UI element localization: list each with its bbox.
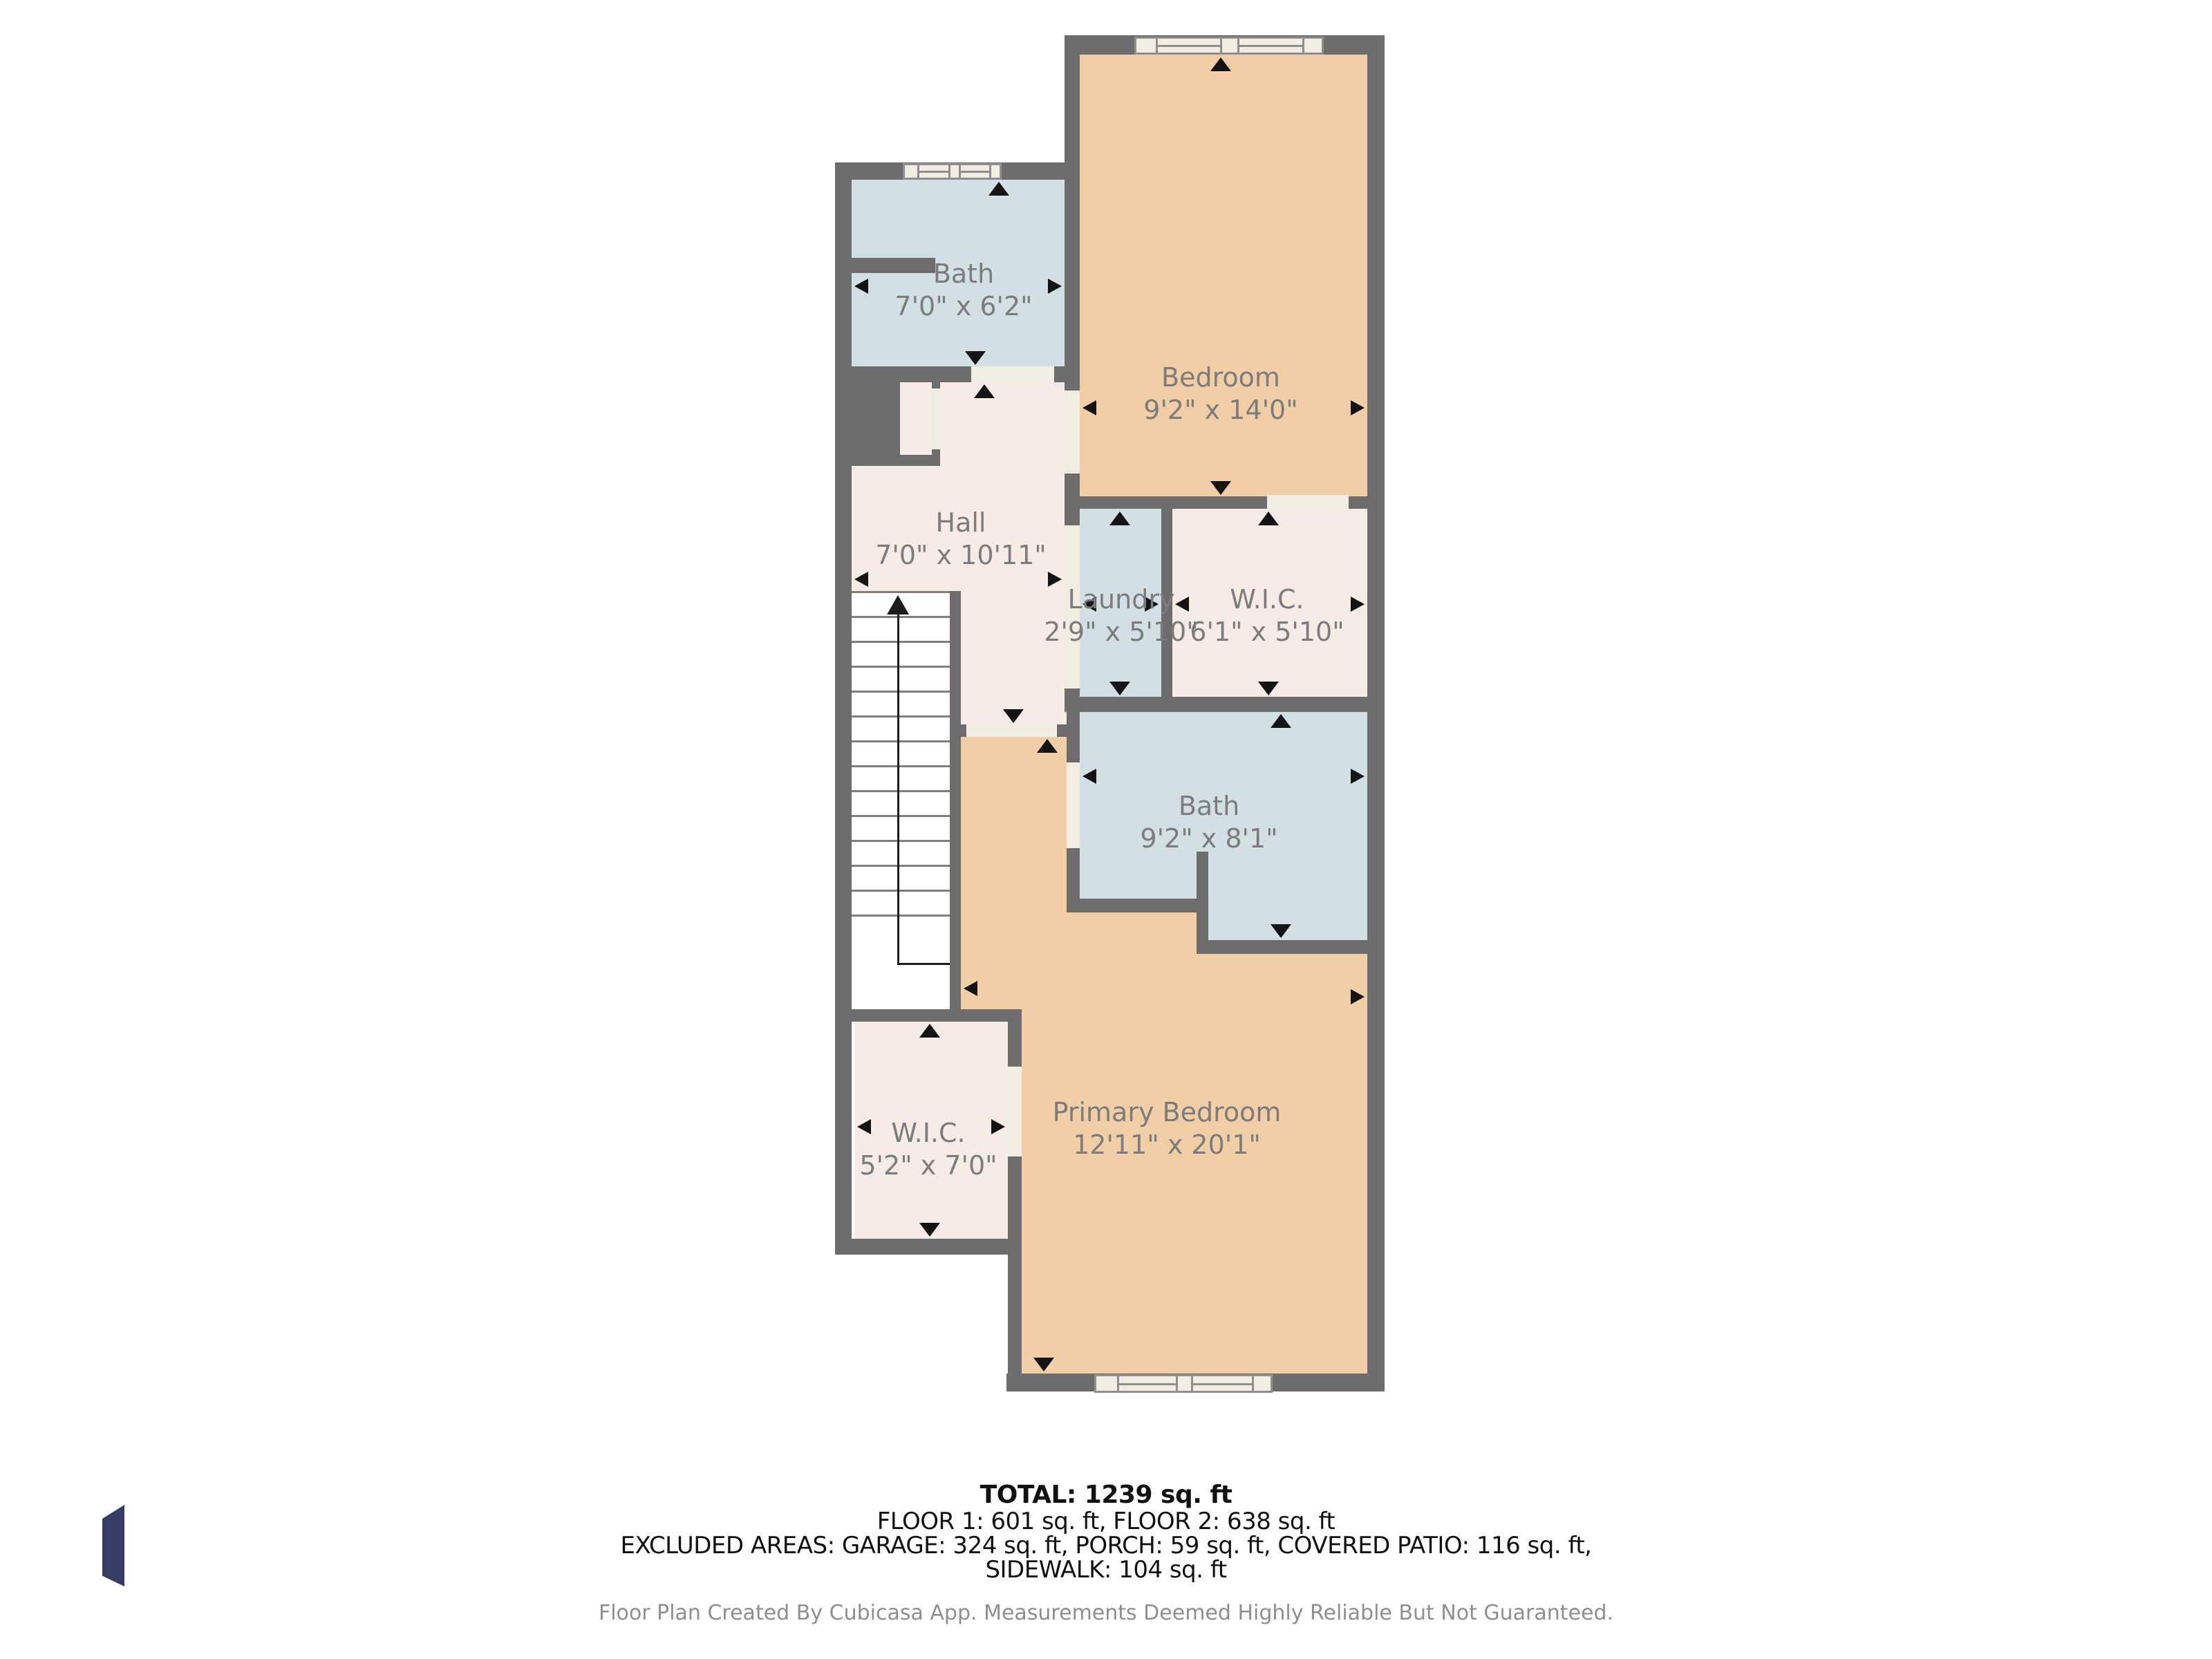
dimension-arrow-right — [1048, 279, 1062, 294]
wall — [1367, 35, 1385, 1391]
stair-tread — [852, 765, 950, 767]
stair-tread — [852, 815, 950, 817]
stair-tread — [852, 915, 950, 917]
door-opening — [1067, 762, 1080, 848]
room-label-wic-upper: W.I.C. 6'1" x 5'10" — [1190, 583, 1344, 648]
room-bedroom — [1080, 55, 1367, 496]
window-frame-line — [1117, 1383, 1176, 1385]
window-frame-line — [1193, 1383, 1252, 1385]
dimension-arrow-up — [1037, 739, 1058, 753]
room-name: Bath — [894, 258, 1032, 290]
room-dimensions: 9'2" x 8'1" — [1140, 823, 1277, 855]
window-frame-line — [1220, 39, 1222, 53]
wall — [1008, 1009, 1022, 1374]
cubicasa-logo-icon — [102, 1505, 124, 1586]
dimension-arrow-left — [854, 279, 868, 294]
room-dimensions: 2'9" x 5'10" — [1044, 616, 1198, 648]
room-name: Laundry — [1044, 583, 1198, 616]
room-label-hall: Hall 7'0" x 10'11" — [875, 507, 1047, 572]
room-name: Bath — [1140, 790, 1277, 823]
dimension-arrow-down — [1109, 682, 1130, 695]
wall — [900, 455, 940, 466]
room-primary-corridor — [961, 737, 1067, 1009]
dimension-arrow-down — [1210, 481, 1231, 495]
wall — [835, 1009, 1008, 1022]
dimension-arrow-left — [964, 981, 977, 996]
room-dimensions: 7'0" x 6'2" — [894, 290, 1032, 323]
disclaimer-text: Floor Plan Created By Cubicasa App. Meas… — [0, 1601, 2212, 1625]
room-dimensions: 5'2" x 7'0" — [859, 1150, 997, 1182]
dimension-arrow-up — [974, 384, 995, 398]
dimension-arrow-down — [1258, 682, 1279, 695]
window-frame-line — [948, 165, 950, 178]
dimension-arrow-down — [1033, 1358, 1054, 1371]
window-frame-line — [1252, 1376, 1254, 1391]
room-name: Hall — [875, 507, 1047, 539]
dimension-arrow-up — [919, 1024, 940, 1038]
window-frame-line — [1176, 1376, 1178, 1391]
wall — [852, 368, 900, 466]
room-label-primary-bedroom: Primary Bedroom 12'11" x 20'1" — [1053, 1096, 1282, 1161]
wall — [835, 162, 852, 1255]
room-label-bedroom: Bedroom 9'2" x 14'0" — [1143, 362, 1297, 427]
stair-tread — [852, 740, 950, 742]
wall — [1197, 852, 1208, 953]
excluded-areas-text: EXCLUDED AREAS: GARAGE: 324 sq. ft, PORC… — [0, 1532, 2212, 1559]
room-primary-main — [1022, 1009, 1367, 1374]
door-opening — [966, 724, 1057, 737]
stair-tread — [852, 840, 950, 842]
dimension-arrow-down — [1003, 709, 1024, 723]
dimension-arrow-down — [1271, 924, 1291, 938]
total-area-text: TOTAL: 1239 sq. ft — [0, 1481, 2212, 1509]
wall — [1067, 899, 1197, 912]
room-hall-alcove — [900, 382, 932, 455]
stair-tread — [852, 591, 950, 593]
dimension-arrow-right — [1351, 989, 1365, 1004]
door-opening — [1008, 1067, 1022, 1156]
dimension-arrow-up — [1258, 512, 1279, 525]
dimension-arrow-down — [965, 351, 986, 365]
window-frame-line — [1302, 39, 1304, 53]
dimension-arrow-up — [1271, 714, 1291, 728]
door-opening — [1065, 391, 1080, 474]
dimension-arrow-left — [854, 572, 868, 587]
stair-tread — [852, 865, 950, 867]
wall — [1197, 940, 1367, 954]
room-primary-mid-left — [1067, 912, 1197, 1009]
wall — [835, 1239, 1022, 1255]
window-frame-line — [989, 165, 991, 178]
excluded-areas-text-2: SIDEWALK: 104 sq. ft — [0, 1556, 2212, 1584]
wall — [950, 591, 961, 1009]
stair-tread — [852, 790, 950, 792]
window-frame-line — [917, 171, 948, 173]
stair-tread — [852, 715, 950, 718]
room-name: W.I.C. — [1190, 583, 1344, 616]
dimension-arrow-right — [1351, 400, 1365, 415]
floor-areas-text: FLOOR 1: 601 sq. ft, FLOOR 2: 638 sq. ft — [0, 1508, 2212, 1535]
dimension-arrow-up — [1109, 512, 1130, 525]
room-label-bath-lower: Bath 9'2" x 8'1" — [1140, 790, 1277, 855]
room-dimensions: 12'11" x 20'1" — [1053, 1129, 1282, 1161]
dimension-arrow-up — [1210, 57, 1231, 71]
window-frame-line — [961, 171, 989, 173]
dimension-arrow-right — [1351, 597, 1365, 612]
window — [1134, 37, 1324, 55]
room-primary-mid-right — [1197, 954, 1367, 1009]
dimension-arrow-down — [919, 1223, 940, 1237]
stair-tread — [852, 691, 950, 693]
room-name: W.I.C. — [859, 1117, 997, 1150]
room-dimensions: 9'2" x 14'0" — [1143, 394, 1297, 427]
room-hall-upper — [940, 382, 1065, 466]
door-opening — [1267, 495, 1349, 509]
dimension-arrow-left — [1082, 400, 1096, 415]
stair-direction-arrow-icon — [887, 595, 909, 615]
stair-run-line — [897, 612, 899, 964]
dimension-arrow-right — [1351, 769, 1365, 784]
floor-plan-canvas: Bath 7'0" x 6'2" Bedroom 9'2" x 14'0" Ha… — [0, 0, 2212, 1659]
room-label-laundry: Laundry 2'9" x 5'10" — [1044, 583, 1198, 648]
door-opening — [932, 388, 940, 449]
stair-tread — [852, 890, 950, 892]
dimension-arrow-up — [988, 182, 1009, 196]
stair-run-line — [897, 963, 950, 965]
room-label-wic-lower: W.I.C. 5'2" x 7'0" — [859, 1117, 997, 1182]
room-dimensions: 6'1" x 5'10" — [1190, 616, 1344, 648]
room-label-bath-upper: Bath 7'0" x 6'2" — [894, 258, 1032, 323]
window — [1094, 1374, 1273, 1393]
dimension-arrow-left — [1082, 769, 1096, 784]
stair-tread — [852, 666, 950, 668]
stair-tread — [852, 641, 950, 643]
window-frame-line — [1239, 45, 1302, 47]
room-name: Primary Bedroom — [1053, 1096, 1282, 1129]
stair-tread — [852, 616, 950, 618]
wall — [1065, 697, 1367, 712]
door-opening — [971, 366, 1054, 382]
room-name: Bedroom — [1143, 362, 1297, 394]
window-frame-line — [1156, 45, 1220, 47]
room-dimensions: 7'0" x 10'11" — [875, 539, 1047, 572]
staircase — [852, 591, 950, 1009]
window — [903, 163, 1002, 180]
